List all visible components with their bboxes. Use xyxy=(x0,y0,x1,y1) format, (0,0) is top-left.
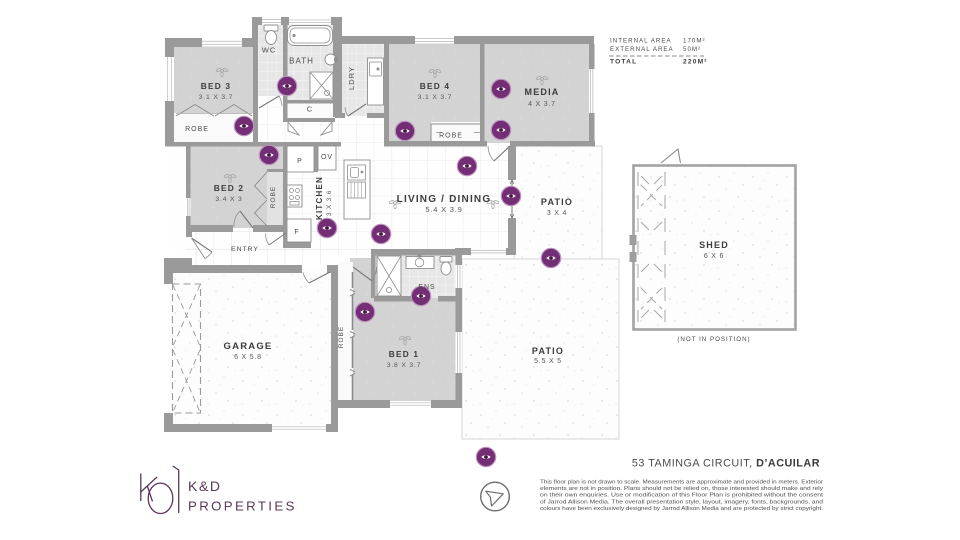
svg-text:BED 3: BED 3 xyxy=(201,81,231,91)
svg-text:SHED: SHED xyxy=(699,240,729,250)
svg-text:3.4 X 3: 3.4 X 3 xyxy=(215,196,242,203)
svg-text:PATIO: PATIO xyxy=(541,197,573,207)
svg-text:C: C xyxy=(307,105,313,114)
svg-text:F: F xyxy=(294,229,299,236)
svg-text:BED 2: BED 2 xyxy=(214,183,244,193)
svg-text:50M²: 50M² xyxy=(683,46,701,53)
svg-text:3.1 X 3.7: 3.1 X 3.7 xyxy=(418,94,452,101)
svg-text:elements are not in position.: elements are not in position. Plans shou… xyxy=(540,486,823,492)
svg-text:EXTERNAL AREA: EXTERNAL AREA xyxy=(610,46,674,53)
svg-text:5.4 X 3.9: 5.4 X 3.9 xyxy=(425,205,462,214)
svg-text:BED 1: BED 1 xyxy=(389,349,419,359)
svg-text:OV: OV xyxy=(321,154,333,161)
svg-text:ROBE: ROBE xyxy=(439,133,463,140)
svg-text:3 X 4: 3 X 4 xyxy=(547,210,567,217)
svg-text:6 X 6: 6 X 6 xyxy=(704,253,724,260)
svg-text:MEDIA: MEDIA xyxy=(525,87,560,97)
svg-text:K&D: K&D xyxy=(188,478,222,494)
svg-text:LIVING / DINING: LIVING / DINING xyxy=(397,194,492,205)
svg-text:GARAGE: GARAGE xyxy=(224,341,273,352)
svg-text:TOTAL: TOTAL xyxy=(610,59,637,66)
svg-text:(NOT IN POSITION): (NOT IN POSITION) xyxy=(677,336,750,343)
svg-text:3.1 X 3.7: 3.1 X 3.7 xyxy=(199,94,233,101)
svg-text:3.8 X 3.7: 3.8 X 3.7 xyxy=(387,362,421,369)
svg-text:220M²: 220M² xyxy=(683,59,708,66)
svg-text:53 TAMINGA CIRCUIT, D’ACUILAR: 53 TAMINGA CIRCUIT, D’ACUILAR xyxy=(632,458,820,470)
svg-text:ENTRY: ENTRY xyxy=(231,246,259,253)
svg-text:BED 4: BED 4 xyxy=(420,81,450,91)
svg-text:of Jarrod Allison Media. The o: of Jarrod Allison Media. The overall pre… xyxy=(540,499,823,505)
svg-text:KITCHEN: KITCHEN xyxy=(315,176,324,220)
svg-text:WC: WC xyxy=(262,46,277,55)
svg-text:170M²: 170M² xyxy=(683,38,706,45)
svg-text:BATH: BATH xyxy=(289,57,314,66)
svg-text:6 X 5.8: 6 X 5.8 xyxy=(234,354,262,361)
svg-text:4 X 3.7: 4 X 3.7 xyxy=(528,101,556,108)
svg-text:ENS: ENS xyxy=(418,284,435,291)
svg-text:This floor plan is not drawn t: This floor plan is not drawn to scale. M… xyxy=(540,480,823,486)
svg-text:ROBE: ROBE xyxy=(338,326,345,348)
svg-text:ROBE: ROBE xyxy=(270,186,277,208)
svg-text:colours have been exclusively: colours have been exclusively designed b… xyxy=(540,506,823,512)
svg-text:3 X 3.6: 3 X 3.6 xyxy=(326,190,333,216)
svg-text:LDRY: LDRY xyxy=(347,66,356,90)
svg-text:INTERNAL AREA: INTERNAL AREA xyxy=(610,38,672,45)
svg-text:ROBE: ROBE xyxy=(185,126,209,133)
svg-text:on their own enquiries. Use or: on their own enquiries. Use or modificat… xyxy=(540,493,824,499)
svg-text:PATIO: PATIO xyxy=(532,346,564,356)
svg-text:5.5 X 5: 5.5 X 5 xyxy=(534,358,562,365)
svg-text:PROPERTIES: PROPERTIES xyxy=(188,499,297,514)
svg-text:P: P xyxy=(297,158,303,165)
